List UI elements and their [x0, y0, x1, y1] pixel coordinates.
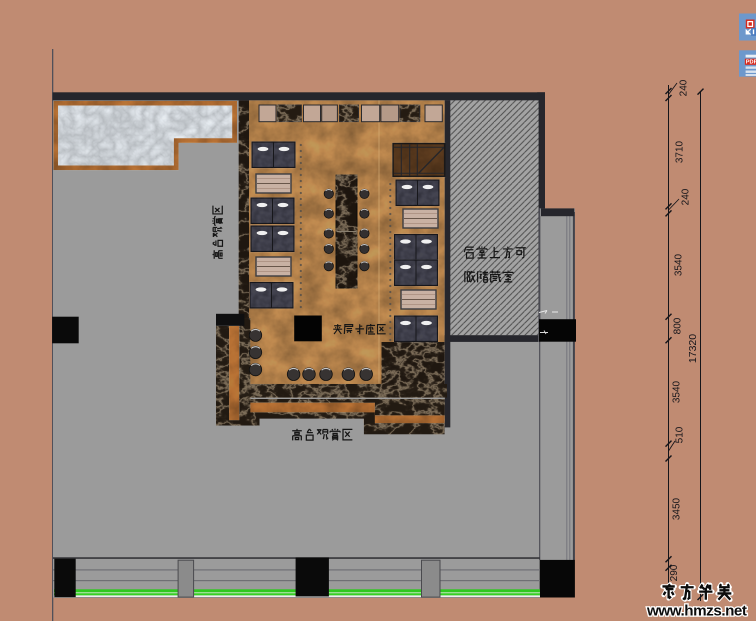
svg-text:17320: 17320 [687, 334, 699, 363]
svg-text:240: 240 [679, 79, 690, 96]
svg-text:240: 240 [681, 188, 692, 205]
svg-text:510: 510 [675, 426, 686, 443]
svg-text:3450: 3450 [672, 497, 683, 520]
svg-text:290: 290 [669, 564, 680, 581]
svg-text:3540: 3540 [674, 253, 685, 276]
svg-text:3540: 3540 [672, 380, 683, 403]
svg-text:www.hmzs.net: www.hmzs.net [646, 602, 747, 619]
svg-text:800: 800 [673, 317, 684, 334]
svg-text:3710: 3710 [675, 140, 686, 163]
svg-text:PDF: PDF [746, 60, 756, 66]
